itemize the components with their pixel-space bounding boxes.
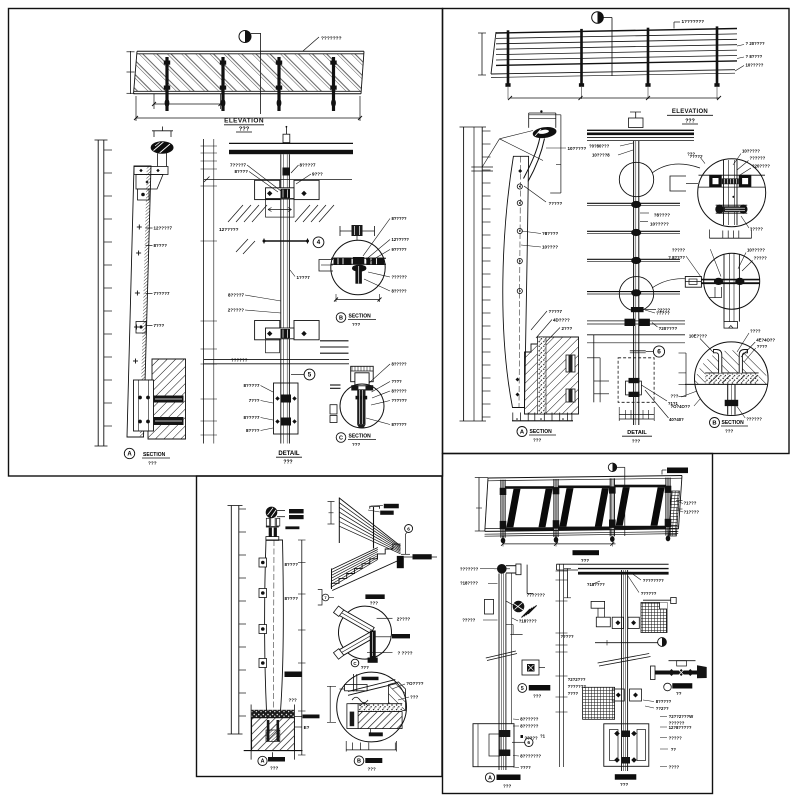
svg-text:8?????: 8?????: [392, 216, 408, 221]
svg-text:????: ????: [520, 765, 531, 770]
svg-text:2???: 2???: [562, 326, 573, 331]
svg-text:?8????: ?8????: [542, 231, 558, 236]
svg-text:??: ??: [676, 691, 682, 696]
svg-text:8??????: 8??????: [520, 723, 539, 728]
svg-text:12?????: 12?????: [392, 237, 410, 242]
svg-text:1???7: 1???7: [297, 275, 311, 280]
svg-text:A: A: [127, 451, 132, 457]
svg-text:6: 6: [657, 348, 661, 355]
svg-text:???: ???: [289, 698, 297, 703]
svg-text:?1????: ?1????: [684, 510, 700, 515]
svg-text:9?????: 9?????: [392, 247, 408, 252]
svg-text:???: ???: [533, 438, 541, 443]
svg-text:???: ???: [503, 784, 511, 789]
svg-text:???????: ???????: [527, 593, 546, 598]
svg-text:? 20????: ? 20????: [746, 41, 765, 46]
svg-text:????: ????: [750, 329, 761, 334]
svg-text:4E?4O??: 4E?4O??: [756, 338, 775, 343]
svg-text:12????7: 12????7: [154, 226, 173, 231]
svg-text:? 8????: ? 8????: [746, 54, 763, 59]
svg-text:10????: 10????: [542, 245, 558, 250]
svg-text:8????7: 8????7: [243, 383, 259, 388]
svg-text:7???: 7???: [249, 398, 260, 403]
svg-text:8?????: 8?????: [392, 289, 408, 294]
svg-text:??????: ??????: [750, 156, 766, 161]
svg-text:???: ???: [581, 558, 589, 563]
svg-text:10?????: 10?????: [742, 149, 760, 154]
svg-text:????: ????: [568, 691, 579, 696]
svg-text:???: ???: [671, 394, 679, 399]
svg-text:B: B: [712, 420, 716, 426]
svg-text:??????: ??????: [392, 275, 408, 280]
svg-text:5: 5: [521, 686, 524, 692]
svg-text:???: ???: [352, 322, 360, 327]
svg-text:SECTION: SECTION: [530, 429, 553, 435]
svg-text:?????: ?????: [690, 154, 703, 159]
svg-text:10?????: 10?????: [650, 222, 669, 227]
svg-text:10????8: 10????8: [592, 153, 610, 158]
svg-text:?????: ?????: [549, 201, 563, 206]
svg-text:?????: ?????: [672, 248, 685, 253]
svg-text:1???????: 1???????: [682, 19, 705, 24]
svg-text:???: ???: [368, 767, 376, 772]
svg-text:12?????: 12?????: [219, 227, 239, 232]
svg-text:?2??2???W: ?2??2???W: [669, 714, 695, 719]
svg-text:??????: ??????: [641, 591, 657, 596]
svg-text:8??????: 8??????: [520, 717, 539, 722]
svg-text:DETAIL: DETAIL: [627, 430, 647, 436]
svg-text:?????: ?????: [462, 617, 475, 622]
svg-text:?18????: ?18????: [519, 618, 537, 623]
svg-text:???: ???: [370, 600, 378, 605]
svg-text:8????: 8????: [235, 169, 249, 174]
svg-text:4: 4: [317, 239, 321, 246]
svg-text:SECTION: SECTION: [143, 452, 166, 458]
svg-text:40?40?: 40?40?: [669, 417, 684, 422]
svg-text:??2??: ??2??: [656, 706, 669, 711]
svg-text:?0?80???: ?0?80???: [589, 144, 610, 149]
svg-text:8?????: 8?????: [392, 362, 408, 367]
svg-text:?????: ?????: [656, 311, 670, 316]
svg-text:?????: ?????: [669, 735, 682, 740]
svg-text:10E????: 10E????: [689, 334, 708, 339]
svg-text:8????: 8????: [154, 243, 168, 248]
svg-text:??????: ??????: [231, 358, 248, 363]
svg-text:5: 5: [308, 371, 312, 378]
svg-text:???: ???: [283, 460, 292, 466]
svg-text:????7: ????7: [549, 309, 563, 314]
svg-text:???: ???: [632, 439, 641, 444]
svg-text:8????7: 8????7: [243, 415, 259, 420]
svg-text:8?????: 8?????: [392, 422, 408, 427]
svg-text:???????: ???????: [321, 36, 342, 42]
svg-text:???: ???: [270, 766, 278, 771]
svg-text:????: ????: [757, 344, 768, 349]
svg-text:?1: ?1: [540, 733, 546, 738]
svg-text:?O????: ?O????: [406, 681, 423, 686]
svg-text:ELEVATION: ELEVATION: [672, 109, 708, 115]
svg-text:?O?4O??: ?O?4O??: [671, 404, 691, 409]
svg-text:ELEVATION: ELEVATION: [224, 118, 264, 125]
svg-text:2????: 2????: [397, 616, 411, 621]
svg-text:?20????: ?20????: [752, 164, 770, 169]
svg-text:?2?2???: ?2?2???: [568, 677, 586, 682]
svg-text:???: ???: [361, 665, 369, 670]
svg-text:SECTION: SECTION: [349, 314, 372, 320]
svg-text:????: ????: [392, 379, 403, 384]
svg-text:DETAIL: DETAIL: [278, 451, 300, 457]
svg-text:8????7: 8????7: [300, 163, 316, 168]
svg-text:???: ???: [148, 461, 157, 466]
svg-text:7????7: 7????7: [154, 291, 170, 296]
svg-text:??????: ??????: [746, 417, 762, 422]
svg-text:8????7: 8????7: [228, 293, 244, 298]
svg-text:A: A: [261, 759, 265, 765]
svg-text:????: ????: [669, 764, 680, 769]
svg-text:4D????: 4D????: [553, 318, 570, 323]
svg-text:7????7: 7????7: [230, 162, 246, 167]
svg-text:8????: 8????: [285, 596, 299, 601]
svg-text:8????: 8????: [285, 562, 299, 567]
svg-text:E?: E?: [304, 725, 310, 730]
svg-text:?1???: ?1???: [684, 501, 697, 506]
svg-text:8?????: 8?????: [656, 699, 672, 704]
svg-text:?8????: ?8????: [654, 213, 670, 218]
svg-text:?20????: ?20????: [659, 326, 678, 331]
svg-text:??????: ??????: [392, 398, 408, 403]
svg-text:8?????: 8?????: [392, 389, 408, 394]
svg-text:SECTION: SECTION: [349, 434, 372, 440]
svg-text:SECTION: SECTION: [722, 420, 745, 426]
svg-text:???: ???: [410, 695, 418, 700]
svg-text:2?????: 2?????: [228, 308, 244, 313]
svg-text:???????: ???????: [460, 566, 479, 571]
svg-text:9???: 9???: [312, 171, 323, 176]
svg-text:?18????: ?18????: [460, 581, 478, 586]
svg-text:C: C: [339, 435, 343, 441]
svg-text:6: 6: [527, 740, 530, 746]
svg-text:7???: 7???: [154, 323, 165, 328]
svg-text:?18????: ?18????: [587, 582, 605, 587]
svg-text:?????: ?????: [750, 227, 763, 232]
svg-text:????????: ????????: [643, 578, 664, 583]
svg-text:???: ???: [533, 694, 541, 699]
svg-text:B: B: [357, 759, 361, 765]
svg-text:?????: ?????: [754, 256, 767, 261]
svg-text:???: ???: [725, 429, 733, 434]
svg-text:6: 6: [407, 526, 410, 531]
svg-text:???: ???: [352, 442, 360, 447]
svg-text:10?????: 10?????: [747, 248, 765, 253]
svg-text:?????: ?????: [561, 634, 574, 639]
svg-text:8???????: 8???????: [520, 753, 541, 758]
svg-text:B: B: [339, 315, 343, 321]
svg-text:? ????: ? ????: [398, 650, 413, 655]
svg-text:??: ??: [671, 747, 677, 752]
svg-text:?????: ?????: [525, 735, 538, 740]
svg-text:8????: 8????: [246, 428, 260, 433]
svg-text:???: ???: [620, 782, 628, 787]
svg-text:10?????: 10?????: [568, 146, 587, 151]
svg-text:? 8????: ? 8????: [668, 255, 685, 260]
svg-text:A: A: [488, 775, 492, 781]
svg-text:12?8?????: 12?8?????: [669, 725, 692, 730]
svg-text:10?????: 10?????: [746, 63, 764, 68]
svg-text:???????: ???????: [568, 684, 587, 689]
